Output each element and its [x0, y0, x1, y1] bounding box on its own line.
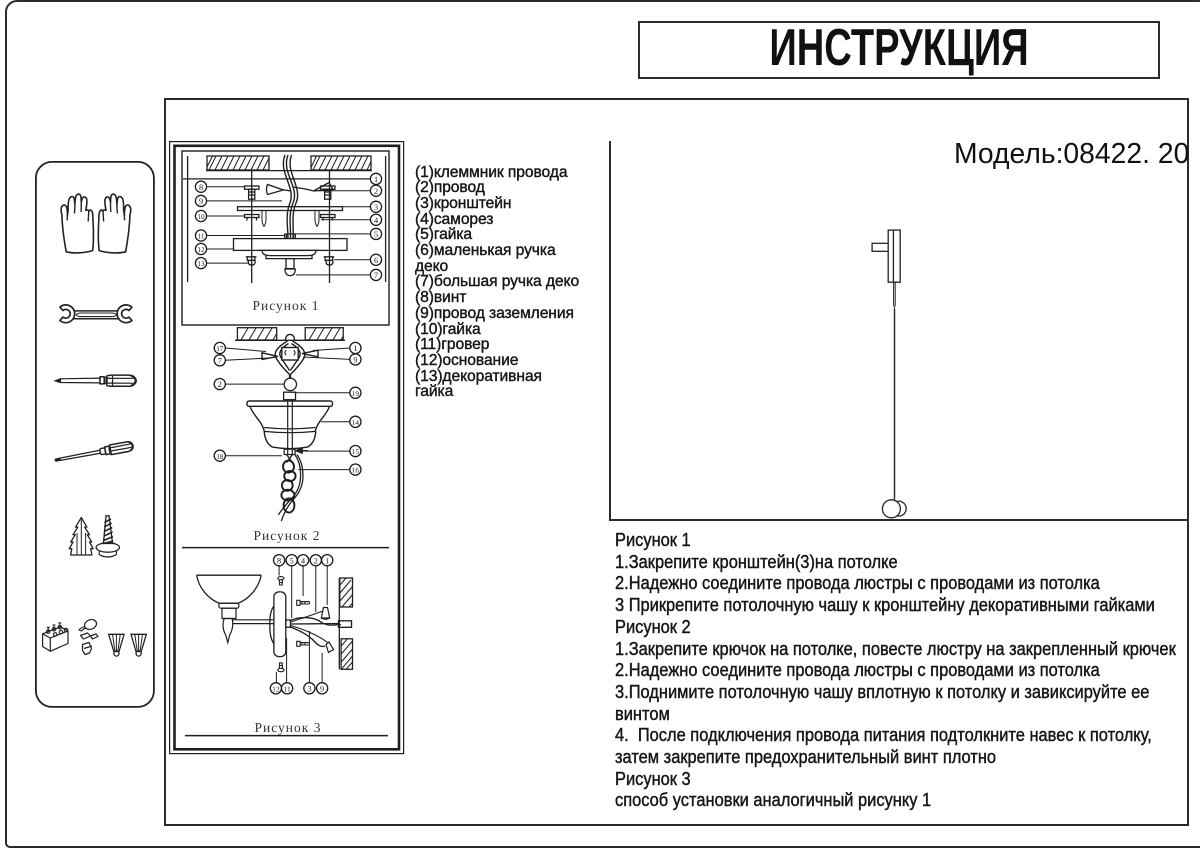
svg-text:2: 2	[374, 187, 378, 196]
svg-text:12: 12	[197, 246, 205, 254]
svg-text:14: 14	[352, 419, 360, 427]
svg-text:4: 4	[374, 216, 378, 225]
svg-text:8: 8	[199, 183, 203, 192]
svg-text:2: 2	[314, 556, 318, 565]
svg-text:9: 9	[199, 197, 203, 206]
svg-text:5: 5	[374, 230, 378, 239]
svg-text:9: 9	[320, 684, 324, 693]
svg-text:5: 5	[290, 556, 294, 565]
svg-text:1: 1	[374, 175, 378, 184]
svg-text:10: 10	[197, 213, 205, 221]
svg-text:Рисунок 2: Рисунок 2	[254, 528, 321, 543]
svg-text:17: 17	[216, 345, 224, 353]
svg-text:2: 2	[218, 380, 222, 389]
svg-text:7: 7	[374, 271, 378, 280]
svg-text:11: 11	[198, 233, 205, 241]
svg-text:8: 8	[277, 556, 281, 565]
svg-text:9: 9	[353, 356, 357, 365]
svg-text:13: 13	[197, 260, 205, 268]
svg-text:18: 18	[216, 453, 224, 461]
svg-text:11: 11	[284, 685, 291, 693]
svg-text:15: 15	[352, 448, 360, 456]
svg-text:7: 7	[218, 356, 222, 365]
svg-text:4: 4	[301, 556, 305, 565]
svg-text:12: 12	[272, 685, 280, 693]
svg-text:3: 3	[374, 203, 378, 212]
svg-text:3: 3	[307, 684, 311, 693]
svg-text:Рисунок 3: Рисунок 3	[255, 720, 322, 735]
svg-text:1: 1	[325, 556, 329, 565]
svg-text:6: 6	[374, 256, 378, 265]
svg-text:Рисунок 1: Рисунок 1	[253, 298, 320, 313]
svg-text:16: 16	[352, 467, 360, 475]
svg-text:1: 1	[353, 344, 357, 353]
svg-text:19: 19	[352, 390, 360, 398]
